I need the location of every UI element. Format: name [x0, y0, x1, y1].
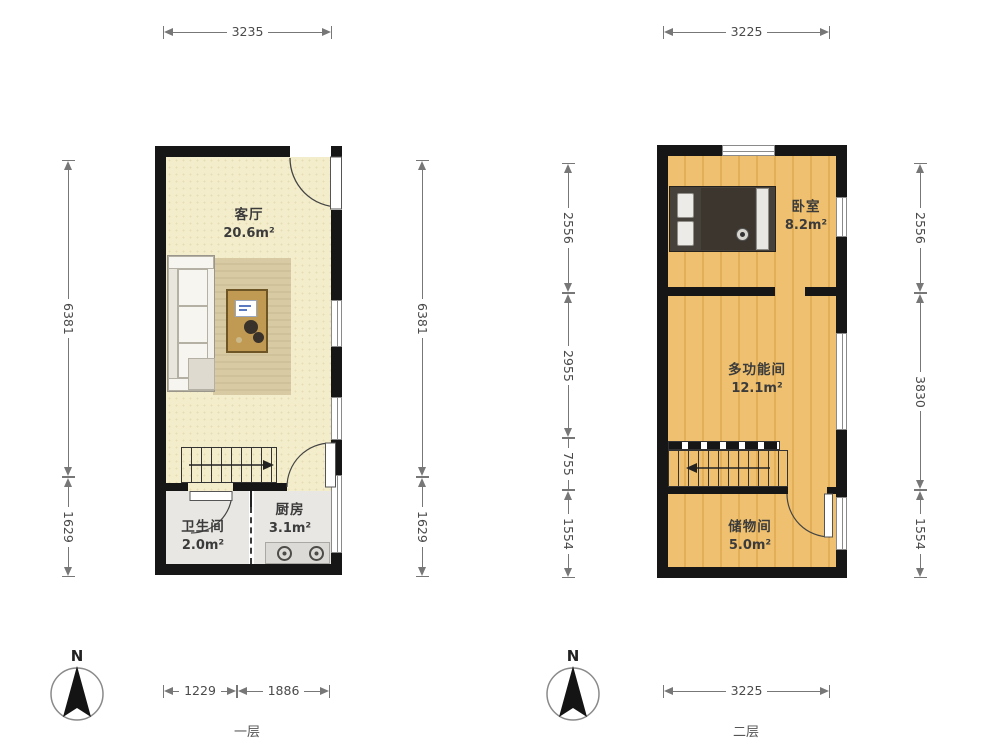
dim-f1-left-lower: 1629 [61, 477, 75, 577]
room-label-bathroom: 卫生间 2.0m² [181, 515, 225, 553]
dim-f1-right-lower: 1629 [415, 477, 429, 577]
dim-f1-top: 3235 [163, 25, 332, 39]
dim-f1-right-upper: 6381 [415, 160, 429, 477]
room-label-bedroom: 卧室 8.2m² [785, 195, 827, 233]
f2-stair-arrowhead [686, 463, 697, 473]
room-label-kitchen: 厨房 3.1m² [269, 498, 311, 536]
dim-f2-bottom: 3225 [663, 684, 830, 698]
floor2-label: 二层 [733, 721, 759, 740]
entry-door-leaf [331, 157, 342, 209]
dim-f2-right-3: 1554 [913, 490, 927, 578]
dim-f1-bottom-right: 1886 [237, 684, 330, 698]
compass-n-f1: N [71, 647, 84, 665]
floorplan-canvas: 客厅 20.6m² 卫生间 2.0m² 厨房 3.1m² 卧室 8.2m² 多功… [0, 0, 1000, 750]
room-label-storage: 储物间 5.0m² [728, 515, 772, 553]
compass-needle-f1 [63, 666, 91, 717]
storage-door-leaf [825, 494, 833, 537]
dim-f1-left-upper: 6381 [61, 160, 75, 477]
room-label-multi: 多功能间 12.1m² [728, 358, 786, 396]
room-label-living: 客厅 20.6m² [223, 203, 274, 241]
kitchen-door-leaf [326, 443, 336, 487]
dim-f2-top: 3225 [663, 25, 830, 39]
compass-n-f2: N [567, 647, 580, 665]
dim-f2-left-4: 1554 [561, 490, 575, 578]
dim-f2-left-3: 755 [561, 438, 575, 490]
bathroom-door-leaf [190, 492, 232, 501]
overlay-graphics [0, 0, 1000, 750]
floor1-label: 一层 [234, 721, 260, 740]
compass-needle-f2 [559, 666, 587, 717]
dim-f1-bottom-left: 1229 [163, 684, 237, 698]
f1-stair-arrowhead [263, 460, 274, 470]
dim-f2-left-1: 2556 [561, 163, 575, 293]
dim-f2-right-2: 3830 [913, 293, 927, 490]
storage-door-arc [787, 494, 830, 537]
kitchen-door-arc [287, 443, 331, 487]
dim-f2-right-1: 2556 [913, 163, 927, 293]
dim-f2-left-2: 2955 [561, 293, 575, 438]
